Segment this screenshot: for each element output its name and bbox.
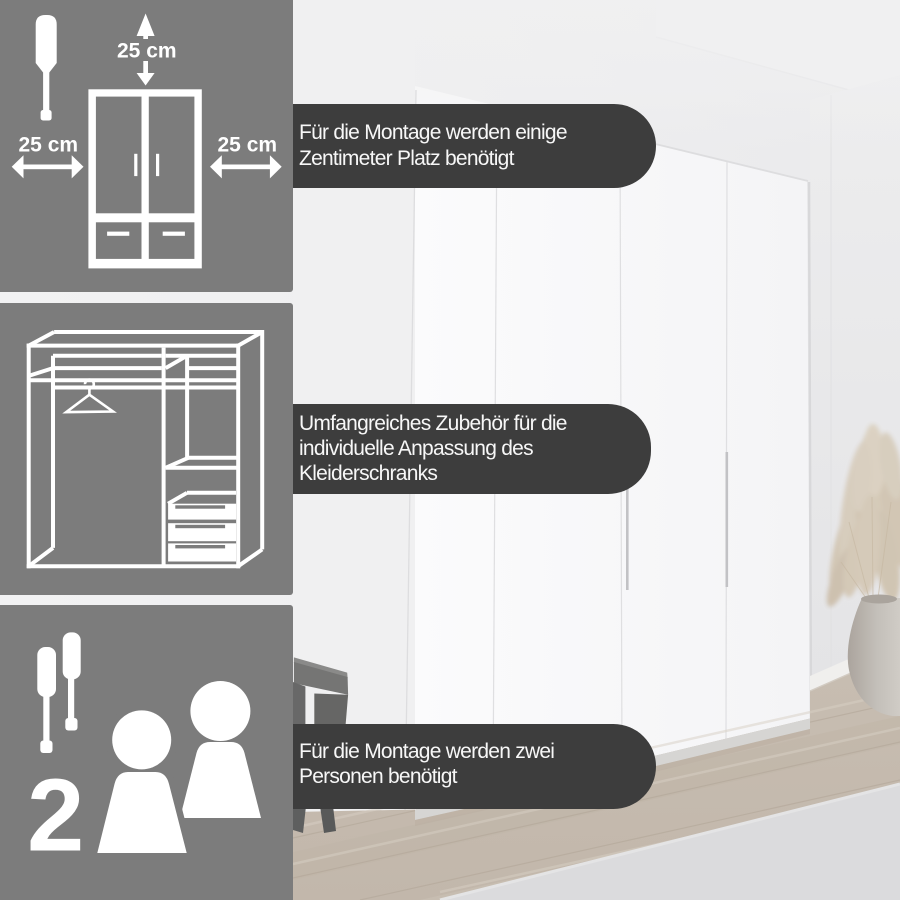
svg-text:2: 2 bbox=[27, 758, 84, 873]
svg-text:25 cm: 25 cm bbox=[218, 134, 278, 157]
svg-text:25 cm: 25 cm bbox=[117, 40, 177, 63]
svg-text:25 cm: 25 cm bbox=[19, 134, 79, 157]
